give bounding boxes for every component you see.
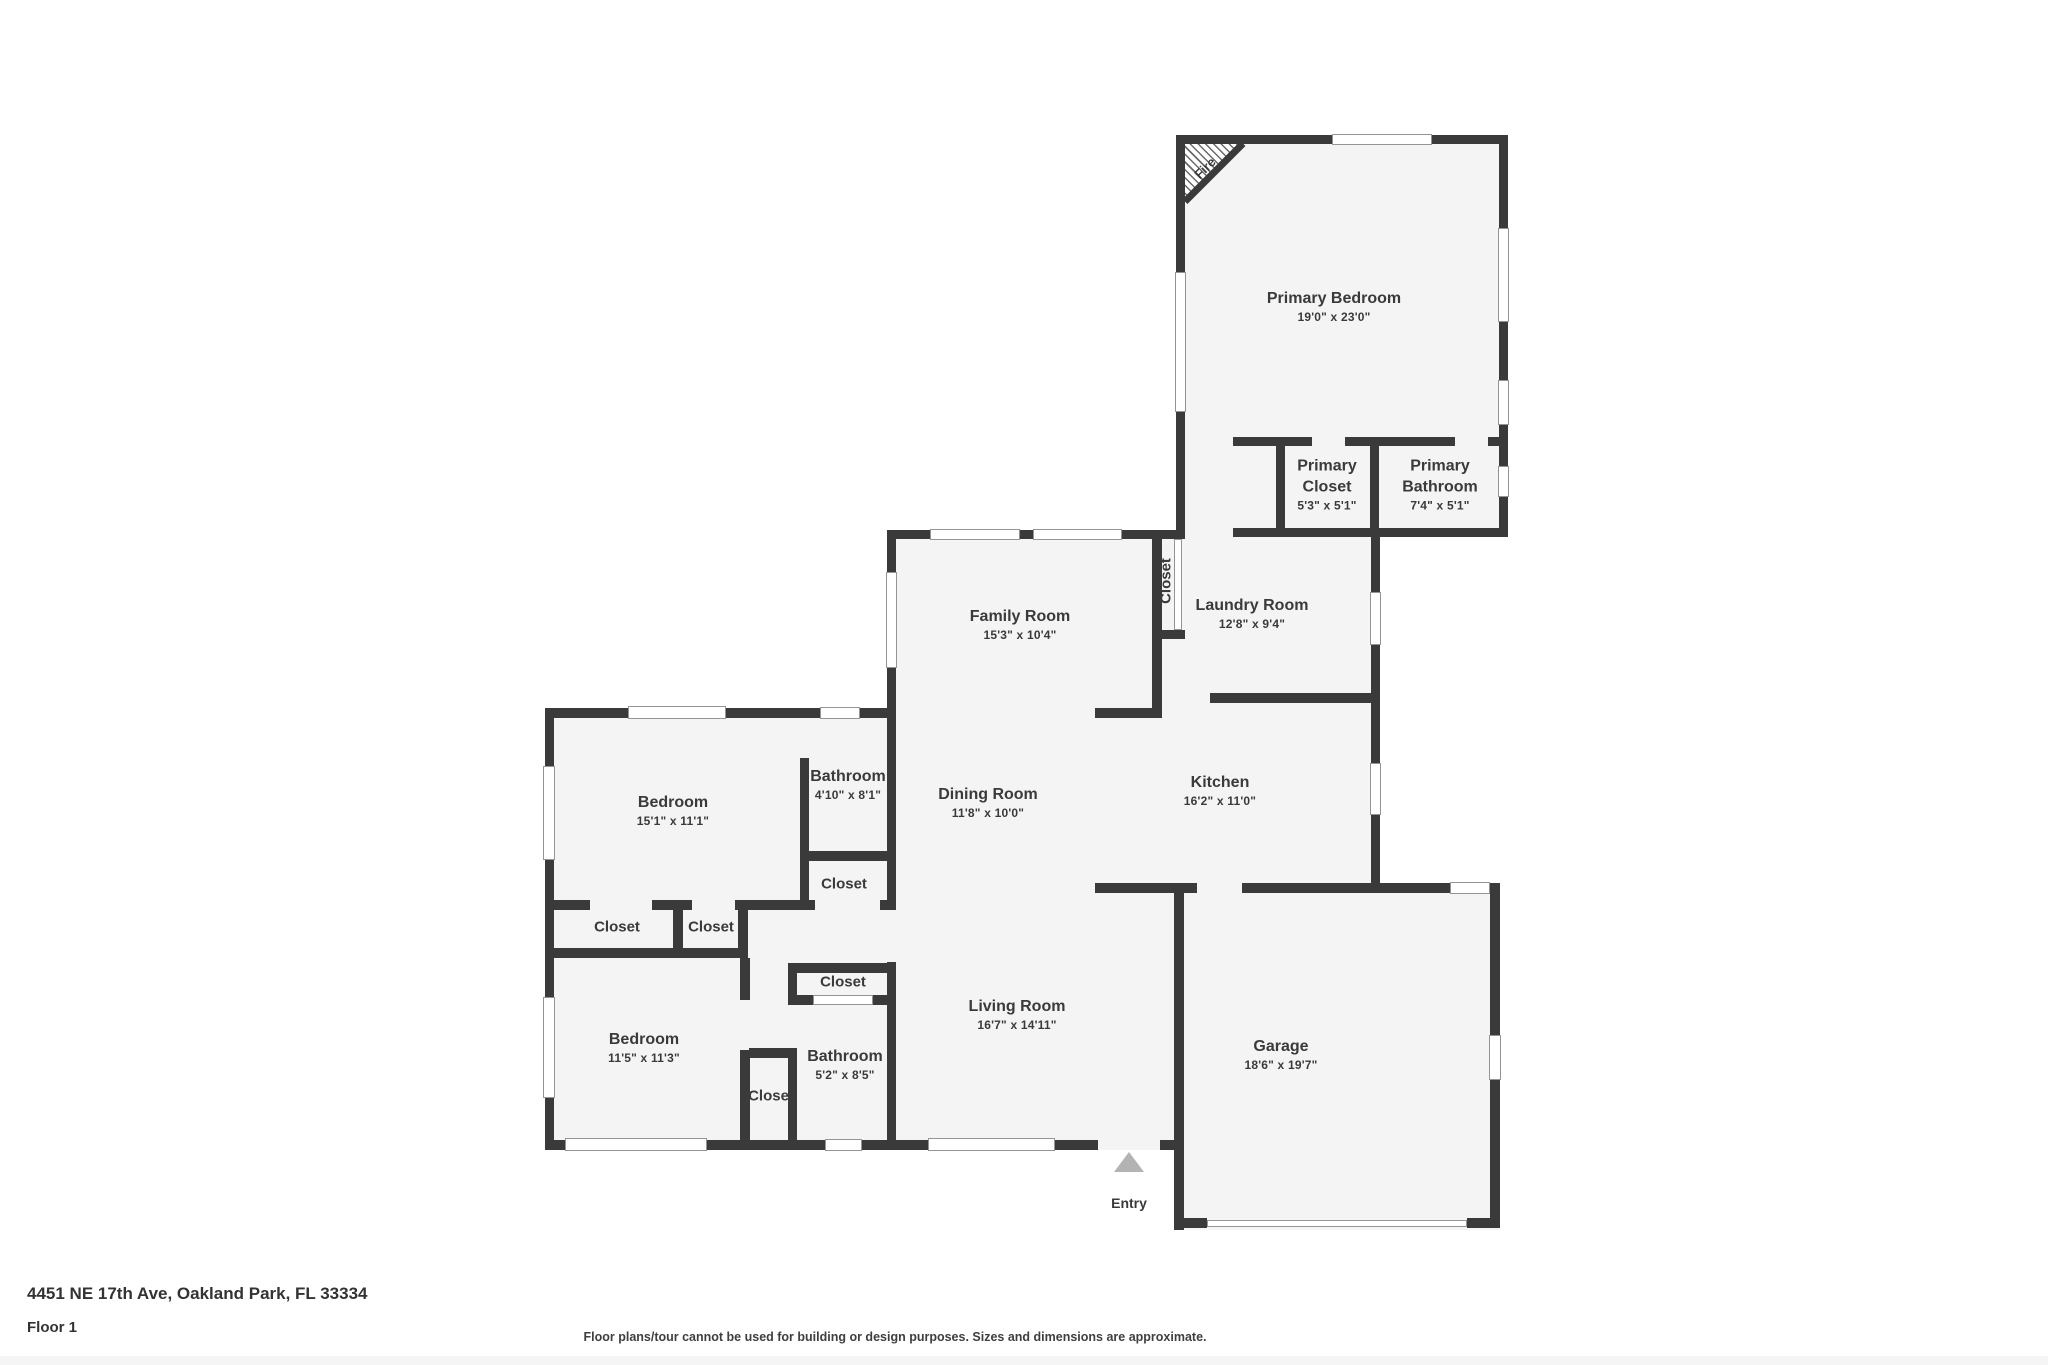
window (1033, 529, 1122, 540)
disclaimer-text: Floor plans/tour cannot be used for buil… (583, 1330, 1206, 1344)
wall-segment (545, 708, 554, 766)
wall-segment (1499, 322, 1508, 380)
wall-segment (1276, 437, 1285, 537)
room-label-closet-under-bathroom: Closet (821, 874, 867, 894)
window (1370, 763, 1381, 815)
wall-segment (707, 1140, 825, 1150)
wall-segment (887, 530, 896, 572)
window (1498, 380, 1509, 425)
wall-segment (1467, 1218, 1500, 1228)
wall-segment (1371, 645, 1380, 763)
window (1175, 272, 1186, 412)
wall-segment (740, 958, 750, 1000)
wall-segment (1176, 412, 1185, 537)
wall-segment (800, 851, 896, 861)
window (1332, 134, 1432, 145)
wall-segment (788, 995, 813, 1005)
window (1498, 228, 1509, 322)
wall-segment (800, 900, 815, 910)
wall-segment (1055, 1140, 1098, 1150)
room-label-primary-bedroom: Primary Bedroom 19'0" x 23'0" (1267, 289, 1401, 325)
room-label-garage: Garage 18'6" x 19'7" (1244, 1037, 1317, 1073)
wall-segment (1490, 1080, 1500, 1220)
window (543, 766, 555, 860)
window (1489, 1035, 1501, 1080)
wall-segment (1176, 135, 1185, 272)
room-label-closet-row-right: Closet (688, 917, 734, 937)
room-label-laundry-room: Laundry Room 12'8" x 9'4" (1196, 596, 1309, 632)
wall-segment (1371, 815, 1380, 893)
wall-segment (873, 995, 896, 1005)
garage-door (1207, 1220, 1467, 1227)
wall-segment (1152, 630, 1185, 639)
wall-segment (545, 900, 590, 910)
room-label-bathroom-upper: Bathroom 4'10" x 8'1" (810, 767, 886, 803)
room-label-dining-room: Dining Room 11'8" x 10'0" (938, 785, 1038, 821)
wall-segment (1371, 530, 1380, 592)
wall-segment (800, 758, 809, 861)
wall-segment (652, 900, 692, 910)
floor-label: Floor 1 (27, 1319, 77, 1336)
address-text: 4451 NE 17th Ave, Oakland Park, FL 33334 (27, 1284, 368, 1304)
wall-segment (545, 1140, 565, 1150)
floor-plan: Fire Entry (0, 0, 2048, 1365)
room-label-living-room: Living Room 16'7" x 14'11" (969, 997, 1066, 1033)
entry-arrow-icon (1114, 1152, 1144, 1172)
room-label-bedroom-middle: Bedroom 15'1" x 11'1" (637, 793, 709, 829)
window (543, 997, 555, 1098)
window (1370, 592, 1381, 645)
window (928, 1138, 1055, 1151)
wall-segment (726, 708, 820, 718)
room-label-closet-above-bathroom: Closet (820, 972, 866, 992)
wall-segment (1095, 708, 1162, 718)
closet-door (813, 995, 873, 1005)
room-label-closet-row-left: Closet (594, 917, 640, 937)
window (628, 706, 726, 719)
window (565, 1138, 707, 1151)
window (1450, 882, 1490, 894)
room-label-bathroom-lower: Bathroom 5'2" x 8'5" (807, 1047, 883, 1083)
window (1498, 466, 1509, 497)
wall-segment (1174, 883, 1184, 1230)
wall-segment (1432, 135, 1508, 144)
window (825, 1139, 862, 1151)
wall-segment (545, 860, 554, 997)
wall-segment (1345, 437, 1455, 446)
room-label-primary-closet: Primary Closet 5'3" x 5'1" (1287, 456, 1367, 513)
wall-segment (1490, 883, 1500, 893)
window (930, 529, 1020, 540)
bottom-strip (0, 1356, 2048, 1365)
wall-segment (545, 708, 628, 718)
wall-segment (887, 962, 896, 1150)
wall-segment (887, 668, 896, 908)
wall-segment (1160, 1140, 1174, 1150)
wall-segment (1499, 135, 1508, 228)
room-label-family-room: Family Room 15'3" x 10'4" (970, 607, 1070, 643)
room-area-garage (1174, 883, 1500, 1230)
wall-segment (1233, 437, 1312, 446)
room-label-hall-closet: Closet (1156, 558, 1176, 604)
room-label-bedroom-lower: Bedroom 11'5" x 11'3" (608, 1030, 680, 1066)
wall-segment (1488, 437, 1508, 446)
wall-segment (1210, 693, 1380, 703)
room-label-primary-bathroom: Primary Bathroom 7'4" x 5'1" (1395, 456, 1485, 513)
wall-segment (1174, 1218, 1207, 1228)
wall-segment (673, 910, 683, 948)
window (820, 707, 860, 719)
wall-segment (1242, 883, 1450, 893)
room-label-kitchen: Kitchen 16'2" x 11'0" (1184, 773, 1256, 809)
room-label-closet-mid-bottom: Closet (748, 1086, 794, 1106)
wall-segment (880, 900, 896, 910)
wall-segment (1020, 530, 1033, 539)
wall-segment (1176, 135, 1332, 144)
entry-label: Entry (1111, 1195, 1147, 1211)
wall-segment (1490, 893, 1500, 1035)
window (886, 572, 897, 668)
wall-segment (545, 948, 748, 958)
wall-segment (1370, 437, 1379, 537)
